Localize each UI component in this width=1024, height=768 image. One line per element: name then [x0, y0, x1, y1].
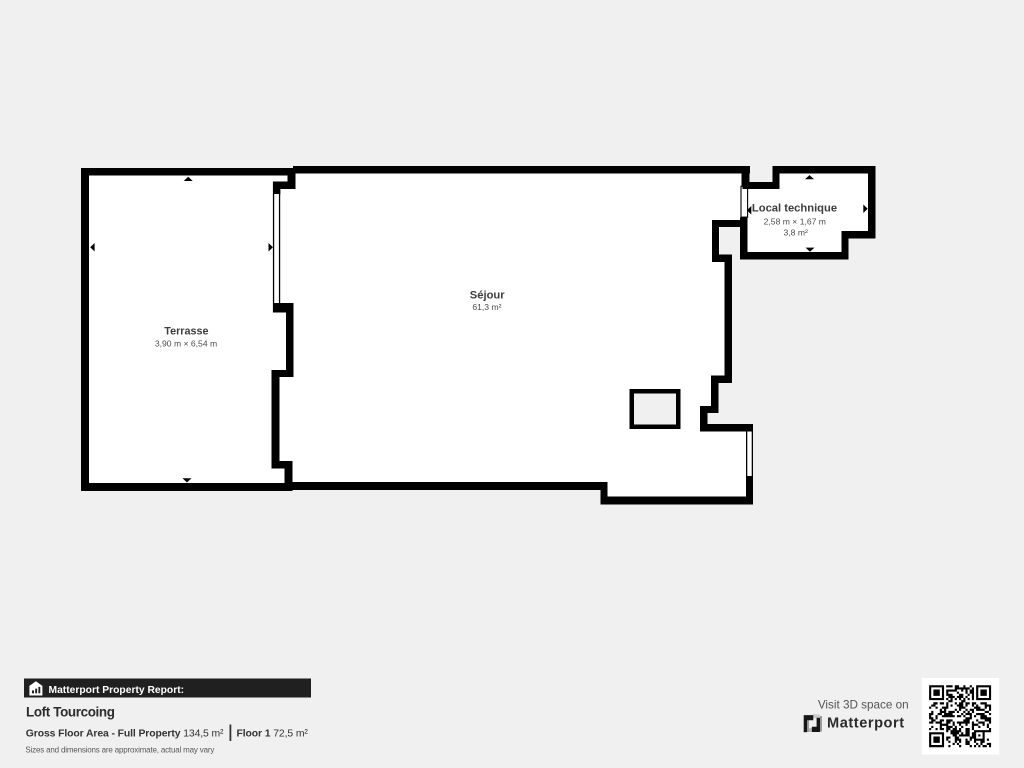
svg-text:Floor 1 72,5 m²: Floor 1 72,5 m²: [237, 729, 309, 740]
svg-text:Terrasse: Terrasse: [164, 326, 208, 338]
svg-text:3,90 m × 6,54 m: 3,90 m × 6,54 m: [155, 339, 217, 349]
svg-text:2,58 m × 1,67 m: 2,58 m × 1,67 m: [764, 216, 826, 226]
svg-text:Sizes and dimensions are appro: Sizes and dimensions are approximate, ac…: [25, 746, 214, 755]
svg-text:Gross Floor Area - Full Proper: Gross Floor Area - Full Property 134,5 m…: [26, 729, 224, 740]
svg-text:3,8 m²: 3,8 m²: [784, 228, 808, 238]
svg-text:Matterport: Matterport: [827, 715, 905, 731]
svg-text:Séjour: Séjour: [470, 289, 505, 301]
svg-text:Matterport Property Report:: Matterport Property Report:: [49, 685, 185, 696]
svg-text:Loft Tourcoing: Loft Tourcoing: [26, 705, 115, 720]
svg-text:Visit 3D space on: Visit 3D space on: [818, 699, 909, 712]
svg-text:61,3 m²: 61,3 m²: [472, 302, 501, 312]
svg-text:Local technique: Local technique: [752, 203, 837, 215]
